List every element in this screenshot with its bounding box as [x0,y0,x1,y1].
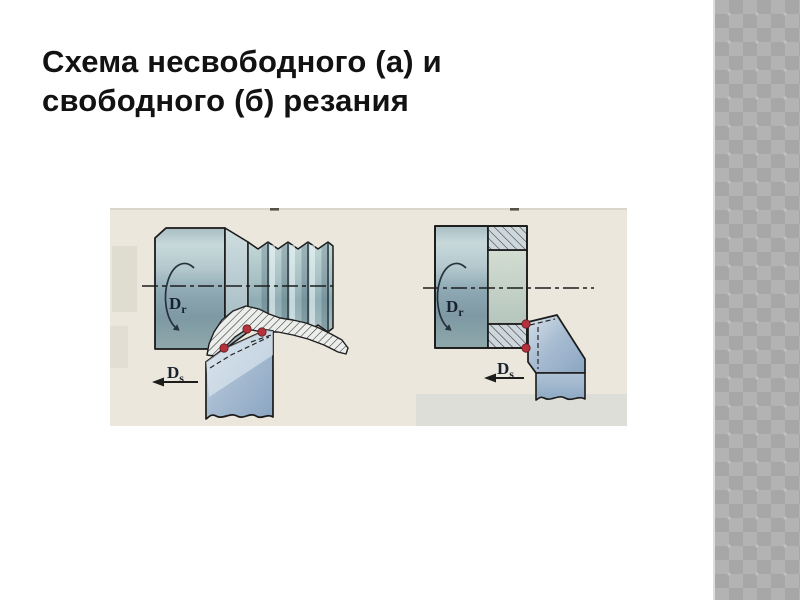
contact-point-dot [243,325,251,333]
presentation-slide: Схема несвободного (а) и свободного (б) … [0,0,800,600]
decorative-sidebar [713,0,800,600]
figure-scan: Dr Ds [110,208,627,426]
contact-point-dot [522,320,530,328]
flange-ring-top-hatched [488,226,527,250]
slide-title: Схема несвободного (а) и свободного (б) … [42,42,642,120]
cropped-caption-b-mark [510,208,519,211]
title-line-1: Схема несвободного (а) и [42,42,642,81]
scan-bleed-artifact [112,246,137,312]
cutting-diagrams-svg: Dr Ds [110,208,627,426]
turned-groove-surface [488,250,527,324]
contact-point-dot [522,344,530,352]
scan-tint-artifact [416,394,627,426]
workpiece-cylinder [435,226,488,348]
contact-point-dot [220,344,228,352]
title-line-2: свободного (б) резания [42,81,642,120]
contact-point-dot [258,328,266,336]
scan-top-edge [110,208,627,210]
scan-bleed-artifact [110,326,128,368]
cropped-caption-a-mark [270,208,279,211]
flange-ring-bottom-hatched [488,324,527,348]
tool-shank [536,373,585,400]
